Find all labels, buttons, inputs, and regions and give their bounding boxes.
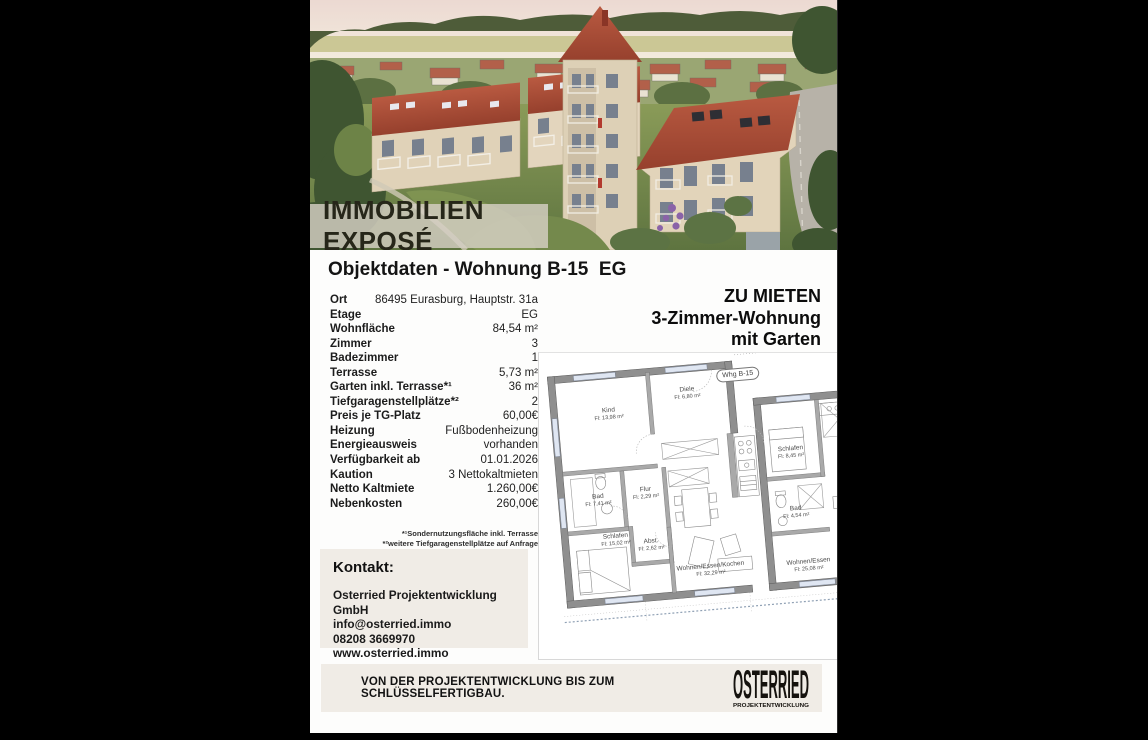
footnotes: *¹Sondernutzungsfläche inkl. Terrasse *²…	[330, 529, 538, 548]
row-label: Preis je TG-Platz	[330, 409, 421, 424]
contact-email[interactable]: info@osterried.immo	[333, 617, 528, 632]
room-label: Schlafen Fl: 8,45 m²	[777, 444, 804, 460]
table-row: Terrasse5,73 m²	[330, 366, 538, 381]
table-row: Wohnfläche84,54 m²	[330, 322, 538, 337]
aerial-render-image: IMMOBILIEN EXPOSÉ	[310, 0, 837, 250]
table-row: Tiefgaragenstellplätze*²2	[330, 395, 538, 410]
row-label: Zimmer	[330, 337, 372, 352]
room-label: Bad Fl: 7,41 m²	[585, 492, 612, 508]
row-value: Fußbodenheizung	[445, 424, 538, 439]
room-label: Bad Fl: 4,54 m²	[782, 504, 809, 520]
room-label: Abst. Fl: 2,62 m²	[638, 537, 665, 553]
row-value: EG	[521, 308, 538, 323]
room-label: Schlafen Fl: 15,02 m²	[601, 532, 631, 549]
row-value: vorhanden	[484, 438, 538, 453]
table-row: Netto Kaltmiete1.260,00€	[330, 482, 538, 497]
contact-heading: Kontakt:	[333, 559, 528, 576]
footnote-2: *²weitere Tiefgaragenstellplätze auf Anf…	[330, 539, 538, 549]
contact-box: Kontakt: Osterried Projektentwicklung Gm…	[320, 549, 528, 648]
row-label: Verfügbarkeit ab	[330, 453, 420, 468]
row-label: Netto Kaltmiete	[330, 482, 414, 497]
expose-banner: IMMOBILIEN EXPOSÉ	[310, 204, 548, 248]
table-row: EtageEG	[330, 308, 538, 323]
row-label: Nebenkosten	[330, 497, 402, 512]
contact-phone: 08208 3669970	[333, 632, 528, 647]
page-title: Objektdaten - Wohnung B-15 EG	[328, 259, 626, 281]
table-row: Nebenkosten260,00€	[330, 497, 538, 512]
offer-line-3: mit Garten	[651, 329, 821, 351]
row-label: Badezimmer	[330, 351, 398, 366]
floor-plan: Kind Fl: 13,98 m² Diele Fl: 6,80 m² Schl…	[538, 352, 838, 660]
row-label: Tiefgaragenstellplätze*²	[330, 395, 459, 410]
contact-website[interactable]: www.osterried.immo	[333, 646, 528, 661]
offer-line-1: ZU MIETEN	[651, 286, 821, 308]
room-label: Diele Fl: 6,80 m²	[674, 385, 701, 401]
row-value: 1.260,00€	[487, 482, 538, 497]
row-label: Heizung	[330, 424, 375, 439]
row-value: 5,73 m²	[499, 366, 538, 381]
footnote-1: *¹Sondernutzungsfläche inkl. Terrasse	[330, 529, 538, 539]
footer-bar: VON DER PROJEKTENTWICKLUNG BIS ZUM SCHLÜ…	[321, 664, 822, 712]
offer-heading: ZU MIETEN 3-Zimmer-Wohnung mit Garten	[651, 286, 821, 351]
osterried-logo: OSTERRIED PROJEKTENTWICKLUNG	[732, 667, 810, 709]
expose-page: IMMOBILIEN EXPOSÉ Objektdaten - Wohnung …	[310, 0, 838, 733]
row-value: 01.01.2026	[480, 453, 538, 468]
row-value: 3 Nettokaltmieten	[449, 468, 539, 483]
room-label: Kind Fl: 13,98 m²	[594, 406, 624, 423]
row-label: Terrasse	[330, 366, 377, 381]
row-label: Energieausweis	[330, 438, 417, 453]
object-data-table: Ort86495 Eurasburg, Hauptstr. 31a EtageE…	[330, 293, 538, 511]
row-value: 260,00€	[496, 497, 538, 512]
osterried-logo-graphic: OSTERRIED PROJEKTENTWICKLUNG	[732, 667, 810, 709]
row-value: 86495 Eurasburg, Hauptstr. 31a	[375, 293, 538, 308]
row-label: Garten inkl. Terrasse*¹	[330, 380, 452, 395]
row-label: Kaution	[330, 468, 373, 483]
table-row: Preis je TG-Platz60,00€	[330, 409, 538, 424]
table-row: Kaution3 Nettokaltmieten	[330, 468, 538, 483]
row-label: Ort	[330, 293, 347, 308]
table-row: Garten inkl. Terrasse*¹36 m²	[330, 380, 538, 395]
table-row: Energieausweisvorhanden	[330, 438, 538, 453]
table-row: Zimmer3	[330, 337, 538, 352]
room-label: Flur Fl: 2,29 m²	[632, 485, 659, 501]
table-row: Badezimmer1	[330, 351, 538, 366]
row-value: 60,00€	[503, 409, 538, 424]
table-row: HeizungFußbodenheizung	[330, 424, 538, 439]
table-row: Verfügbarkeit ab01.01.2026	[330, 453, 538, 468]
row-value: 36 m²	[509, 380, 538, 395]
expose-banner-text: IMMOBILIEN EXPOSÉ	[323, 195, 548, 250]
table-row: Ort86495 Eurasburg, Hauptstr. 31a	[330, 293, 538, 308]
offer-line-2: 3-Zimmer-Wohnung	[651, 308, 821, 330]
row-label: Etage	[330, 308, 361, 323]
row-label: Wohnfläche	[330, 322, 395, 337]
screenshot-canvas: IMMOBILIEN EXPOSÉ Objektdaten - Wohnung …	[0, 0, 1148, 740]
row-value: 3	[532, 337, 538, 352]
logo-wordmark: OSTERRIED	[733, 667, 809, 707]
contact-company: Osterried Projektentwicklung GmbH	[333, 588, 528, 617]
floor-plan-drawing: Kind Fl: 13,98 m² Diele Fl: 6,80 m² Schl…	[538, 352, 838, 660]
row-value: 84,54 m²	[493, 322, 538, 337]
footer-slogan: VON DER PROJEKTENTWICKLUNG BIS ZUM SCHLÜ…	[361, 664, 717, 712]
logo-subtext: PROJEKTENTWICKLUNG	[733, 703, 809, 709]
